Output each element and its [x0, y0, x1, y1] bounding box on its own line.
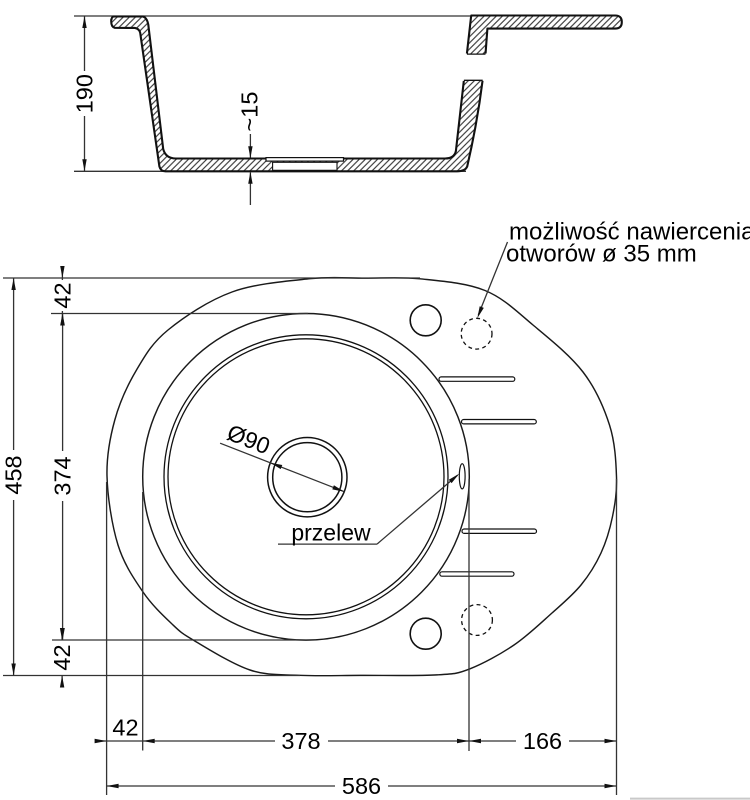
svg-text:374: 374	[50, 456, 76, 495]
svg-text:378: 378	[281, 728, 320, 754]
svg-text:42: 42	[112, 715, 138, 741]
svg-text:~15: ~15	[237, 92, 263, 132]
svg-text:166: 166	[523, 728, 562, 754]
svg-text:przelew: przelew	[291, 520, 371, 546]
svg-text:190: 190	[72, 74, 98, 113]
svg-text:42: 42	[49, 644, 75, 670]
svg-text:42: 42	[49, 282, 75, 308]
svg-text:458: 458	[1, 455, 27, 494]
svg-text:586: 586	[342, 773, 381, 799]
svg-text:otworów ø 35 mm: otworów ø 35 mm	[506, 241, 697, 268]
